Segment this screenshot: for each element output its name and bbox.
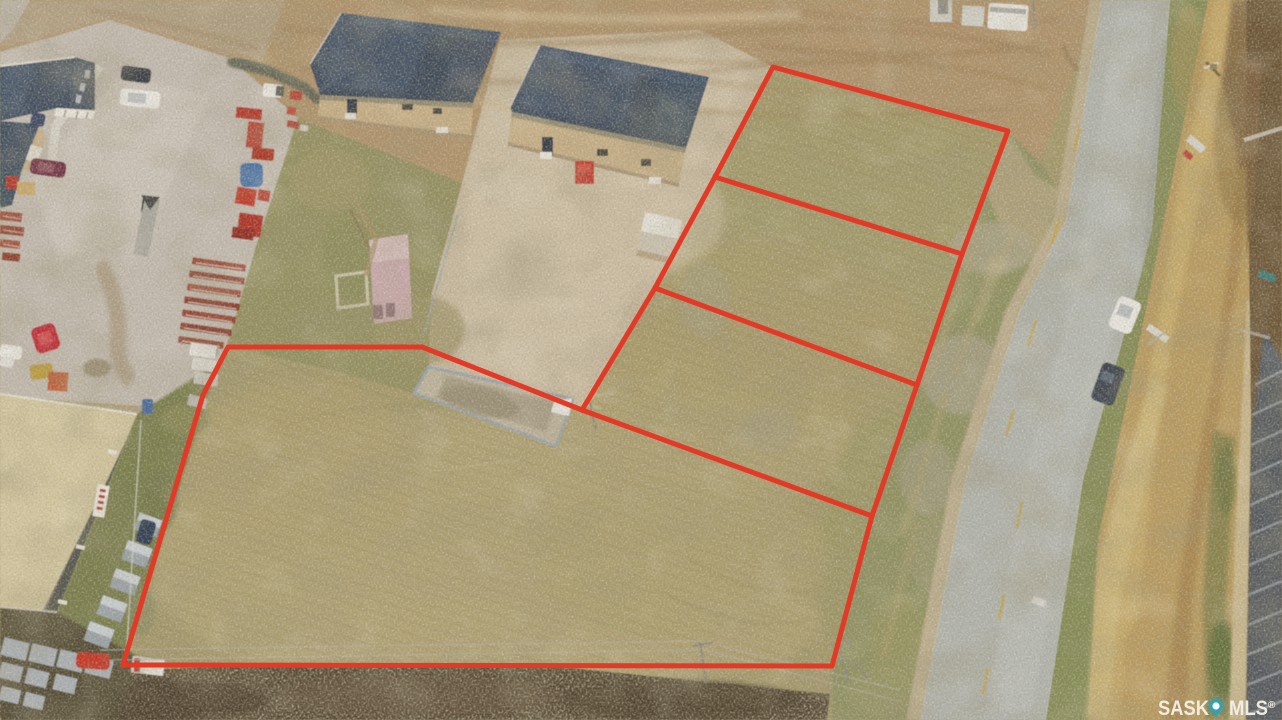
svg-text:MLS: MLS xyxy=(1229,697,1268,720)
svg-text:®: ® xyxy=(1268,700,1276,711)
svg-text:SASK: SASK xyxy=(1158,697,1209,720)
